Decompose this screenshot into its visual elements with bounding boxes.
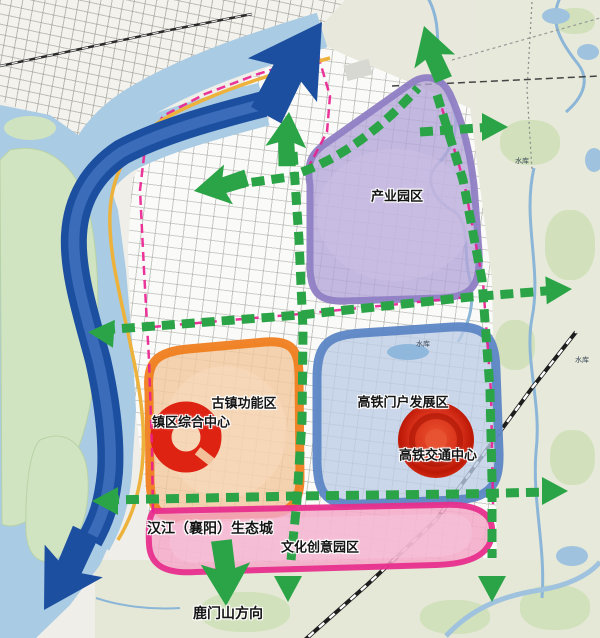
arrow-right-middle bbox=[545, 275, 572, 304]
label-hsr-gateway: 高铁门户发展区 bbox=[357, 392, 448, 411]
label-industrial-park: 产业园区 bbox=[371, 186, 423, 205]
label-cultural-park: 文化创意园区 bbox=[281, 537, 359, 556]
arrow-down-center bbox=[274, 576, 302, 602]
label-reservoir-a: 水库 bbox=[515, 156, 529, 166]
arrow-right-lower bbox=[542, 477, 568, 505]
arrow-up-center bbox=[263, 110, 309, 169]
label-hsr-hub: 高铁交通中心 bbox=[399, 445, 477, 464]
label-lumen-direction: 鹿门山方向 bbox=[193, 603, 263, 623]
arrow-right-east-spur bbox=[482, 113, 508, 141]
hsr-transport-center-marker bbox=[398, 402, 474, 478]
label-reservoir-b: 水库 bbox=[416, 339, 430, 349]
arrow-left-spur bbox=[190, 161, 251, 211]
label-reservoir-c: 水库 bbox=[575, 355, 589, 365]
label-town-center: 镇区综合中心 bbox=[152, 412, 230, 431]
label-eco-city: 汉江（襄阳）生态城 bbox=[147, 518, 273, 538]
planning-map-canvas[interactable]: 产业园区 古镇功能区 镇区综合中心 高铁门户发展区 高铁交通中心 汉江（襄阳）生… bbox=[0, 0, 600, 638]
label-ancient-town: 古镇功能区 bbox=[211, 393, 276, 412]
